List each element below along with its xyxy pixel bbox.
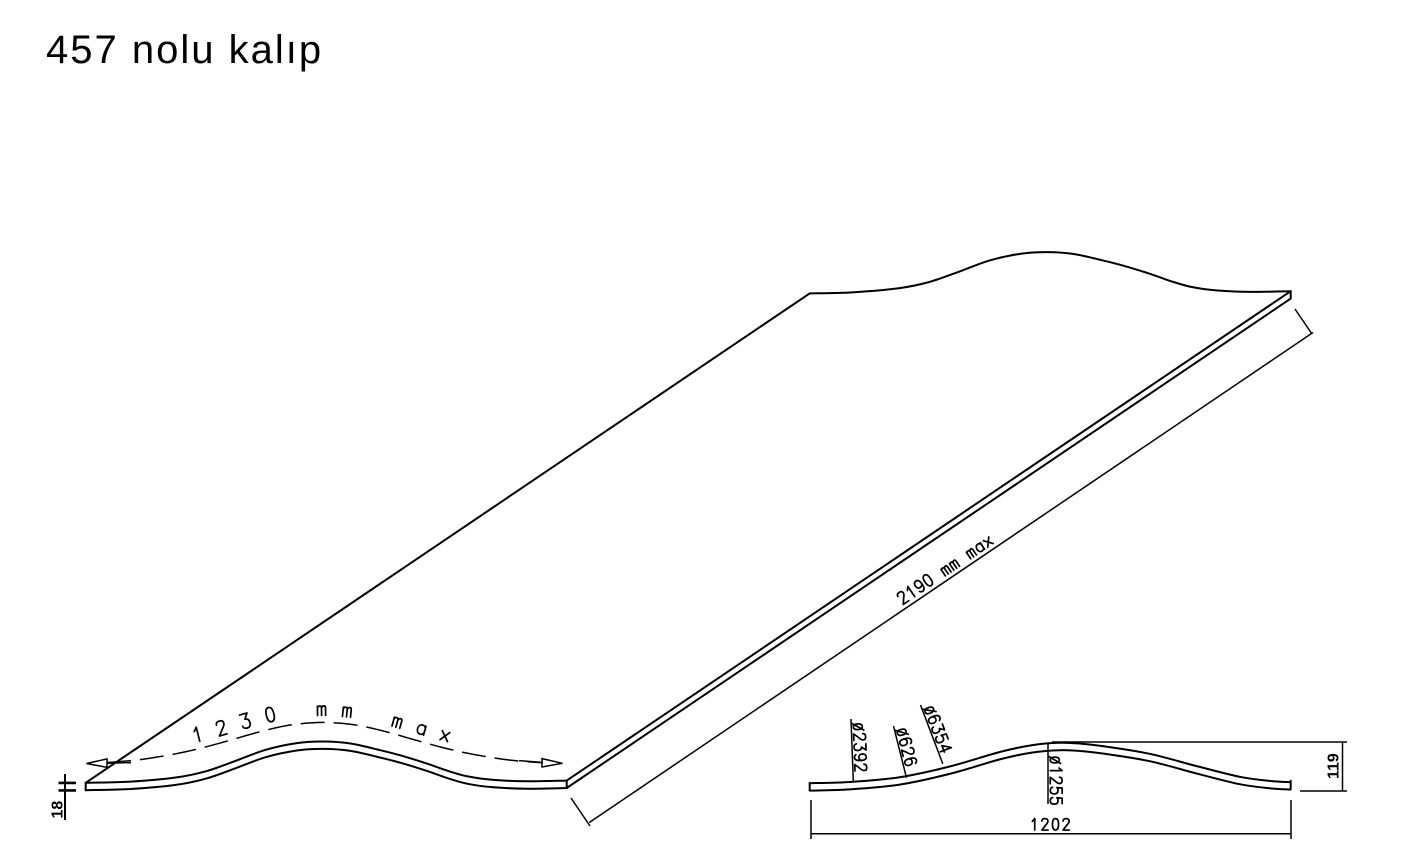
svg-text:457 nolu kalıp: 457 nolu kalıp [46, 28, 323, 72]
svg-text:119: 119 [1326, 753, 1343, 779]
svg-text:18: 18 [50, 801, 67, 819]
